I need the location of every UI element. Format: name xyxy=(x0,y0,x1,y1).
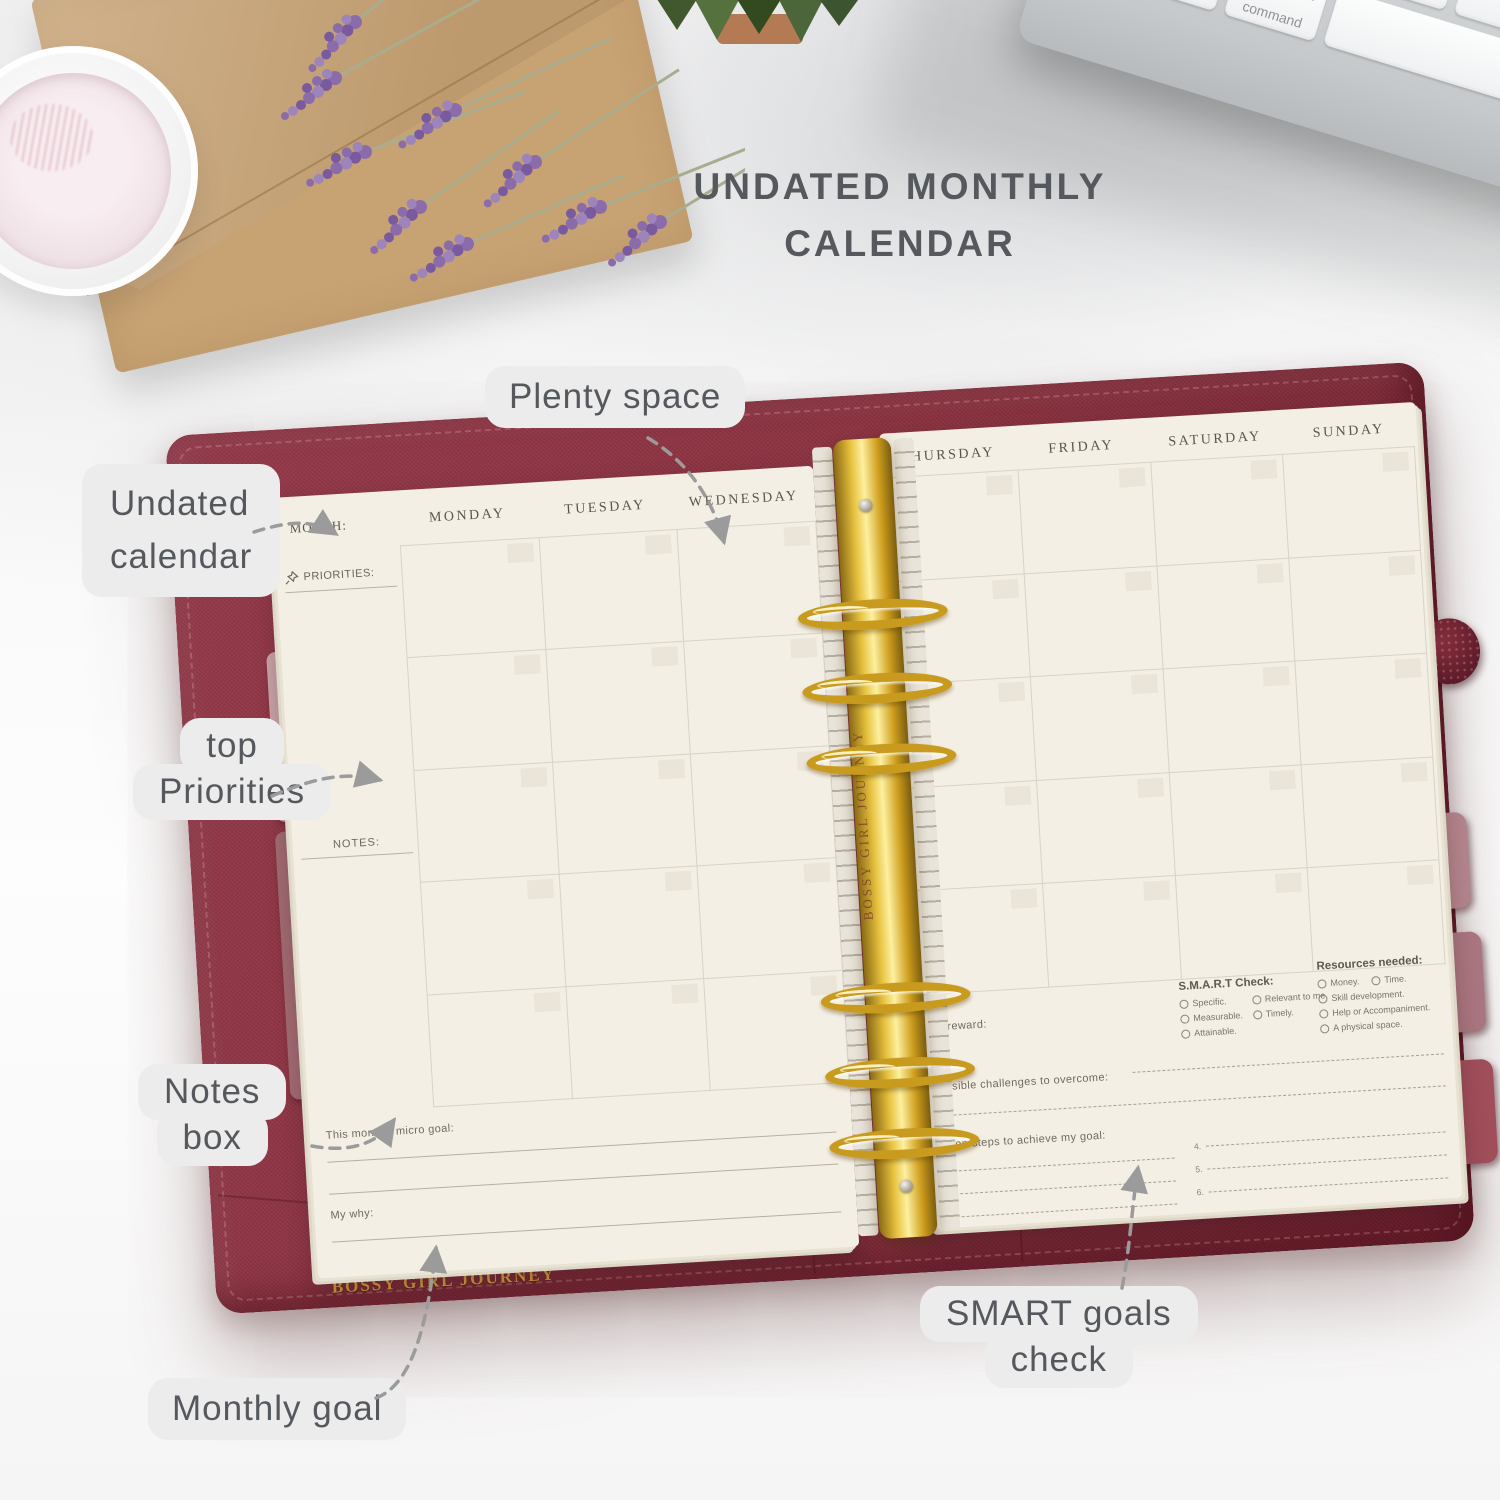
calendar-cell xyxy=(428,987,573,1107)
calendar-cell xyxy=(698,858,843,978)
day-header-monday: MONDAY xyxy=(398,504,537,528)
calendar-grid-right xyxy=(886,446,1446,996)
calendar-left-page: MONTH: MONDAY TUESDAY WEDNESDAY PRIORITI… xyxy=(272,466,859,1279)
annotation-notes-box: Notes box xyxy=(138,1064,286,1166)
annotation-plenty-space: Plenty space xyxy=(485,366,745,428)
day-header-tuesday: TUESDAY xyxy=(536,496,675,520)
writing-line xyxy=(329,1163,838,1194)
calendar-cell xyxy=(414,763,559,883)
command-key-label: command xyxy=(1241,0,1304,31)
keyboard-key-command: ⌘ command xyxy=(1223,0,1330,42)
checkbox-circle-icon xyxy=(1252,995,1262,1005)
calendar-cell xyxy=(1295,654,1433,765)
resource-item: Money. xyxy=(1330,974,1360,991)
command-symbol-icon: ⌘ xyxy=(1301,0,1321,5)
notes-label: NOTES: xyxy=(333,836,381,851)
calendar-cell xyxy=(1157,558,1295,669)
page-title-line2: CALENDAR xyxy=(600,215,1200,272)
checkbox-circle-icon xyxy=(1180,1014,1190,1024)
smart-check-section: S.M.A.R.T Check: Specific. Measurable. A… xyxy=(1178,972,1330,1042)
checkbox-circle-icon xyxy=(1320,1024,1330,1034)
calendar-cell xyxy=(401,538,546,658)
writing-line xyxy=(1209,1177,1449,1192)
my-why-label: My why: xyxy=(330,1207,374,1222)
checkbox-circle-icon xyxy=(1253,1010,1263,1020)
calendar-cell xyxy=(1043,876,1181,987)
calendar-cell xyxy=(421,875,566,995)
day-header-friday: FRIDAY xyxy=(1014,436,1149,460)
page-title: UNDATED MONTHLY CALENDAR xyxy=(600,158,1200,273)
smart-check-col1: Specific. Measurable. Attainable. xyxy=(1179,993,1244,1042)
action-step-number: 6. xyxy=(1196,1187,1209,1198)
calendar-cell xyxy=(1283,447,1421,558)
annotation-line: Undated xyxy=(110,478,252,531)
calendar-right-page: THURSDAY FRIDAY SATURDAY SUNDAY My rewar… xyxy=(879,402,1462,1229)
checkbox-circle-icon xyxy=(1319,1009,1329,1019)
checkbox-circle-icon xyxy=(1179,999,1189,1009)
calendar-cell xyxy=(1163,662,1301,773)
annotation-line: calendar xyxy=(110,531,252,584)
annotation-top-priorities: top Priorities xyxy=(133,718,331,820)
page-title-line1: UNDATED MONTHLY xyxy=(600,158,1200,215)
calendar-cell xyxy=(1169,765,1307,876)
action-step-number: 4. xyxy=(1194,1141,1207,1152)
calendar-cell xyxy=(1289,550,1427,661)
calendar-cell xyxy=(566,979,711,1099)
day-header-wednesday: WEDNESDAY xyxy=(673,488,814,512)
writing-line xyxy=(952,1203,1178,1217)
resources-section: Resources needed: Money. Time. Skill dev… xyxy=(1316,953,1450,1037)
calendar-cell xyxy=(559,866,704,986)
checkbox-circle-icon xyxy=(1181,1029,1191,1039)
calendar-cell xyxy=(1037,773,1175,884)
resource-item: Time. xyxy=(1384,971,1407,987)
action-steps-col-left: 1. 2. 3. xyxy=(936,1140,1178,1223)
annotation-monthly-goal: Monthly goal xyxy=(148,1378,406,1440)
calendar-cell xyxy=(1031,670,1169,781)
notes-section: NOTES: xyxy=(300,834,413,860)
checkbox-circle-icon xyxy=(1371,976,1381,986)
priorities-label: PRIORITIES: xyxy=(303,567,374,583)
writing-line xyxy=(1132,1053,1444,1073)
planner-binder: BOSSY GIRL JOURNEY MONTH: MONDAY TUESDAY… xyxy=(165,361,1475,1314)
calendar-cell xyxy=(678,522,823,642)
calendar-cell xyxy=(553,754,698,874)
calendar-cell xyxy=(1025,566,1163,677)
pushpin-icon xyxy=(284,570,299,585)
writing-line xyxy=(934,1085,1446,1116)
annotation-line: box xyxy=(157,1110,268,1166)
jar-streaks xyxy=(10,104,92,171)
month-label: MONTH: xyxy=(289,518,347,537)
priorities-section: PRIORITIES: xyxy=(284,565,397,594)
smart-item: Timely. xyxy=(1265,1005,1294,1022)
annotation-line: check xyxy=(985,1332,1133,1388)
action-step-number: 5. xyxy=(1195,1164,1208,1175)
annotation-line: Priorities xyxy=(133,764,331,820)
micro-goal-label: This month's micro goal: xyxy=(325,1122,454,1142)
day-header-sunday: SUNDAY xyxy=(1281,420,1416,444)
annotation-smart-goals: SMART goals check xyxy=(920,1286,1198,1388)
jar-lid xyxy=(0,73,171,269)
calendar-cell xyxy=(1301,757,1439,868)
day-header-saturday: SATURDAY xyxy=(1148,428,1283,452)
calendar-cell xyxy=(1151,455,1289,566)
keyboard-key-option: option xyxy=(1139,0,1231,11)
calendar-cell xyxy=(546,642,691,762)
calendar-cell xyxy=(1175,869,1313,980)
calendar-grid-left xyxy=(400,521,850,1108)
action-steps-col-right: 4. 5. 6. xyxy=(1193,1113,1449,1197)
checkbox-circle-icon xyxy=(1318,994,1328,1004)
checkbox-circle-icon xyxy=(1317,979,1327,989)
resource-item: A physical space. xyxy=(1333,1017,1403,1036)
smart-item: Attainable. xyxy=(1194,1024,1237,1041)
annotation-undated-calendar: Undated calendar xyxy=(82,464,280,597)
calendar-cell xyxy=(408,650,553,770)
writing-line xyxy=(332,1211,841,1242)
calendar-cell xyxy=(1019,463,1157,574)
product-photo-stage: V B N M control option ⌘ command UNDATED… xyxy=(0,0,1500,1500)
calendar-cell xyxy=(539,530,684,650)
